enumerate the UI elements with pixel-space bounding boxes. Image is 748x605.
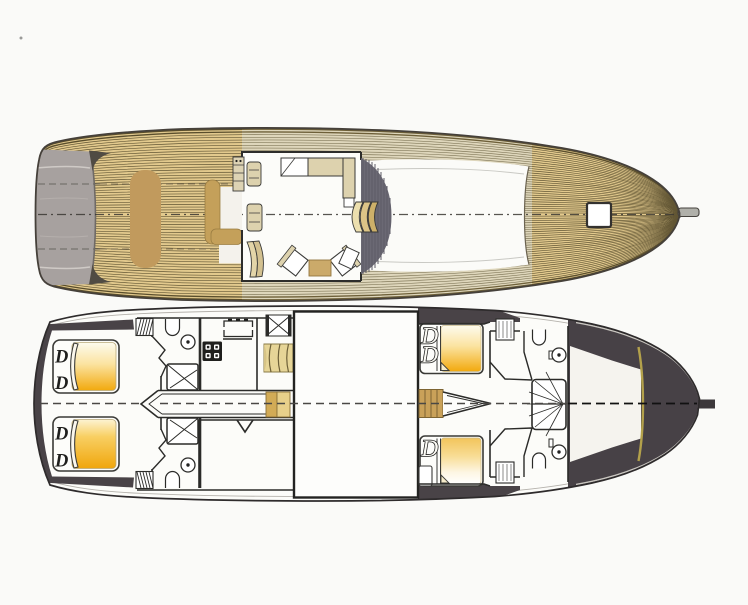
svg-text:D: D [54,452,68,472]
svg-text:D: D [54,374,68,394]
svg-text:D: D [54,425,68,445]
svg-text:D: D [421,343,439,368]
svg-text:D: D [54,347,68,367]
svg-text:D: D [421,436,439,461]
